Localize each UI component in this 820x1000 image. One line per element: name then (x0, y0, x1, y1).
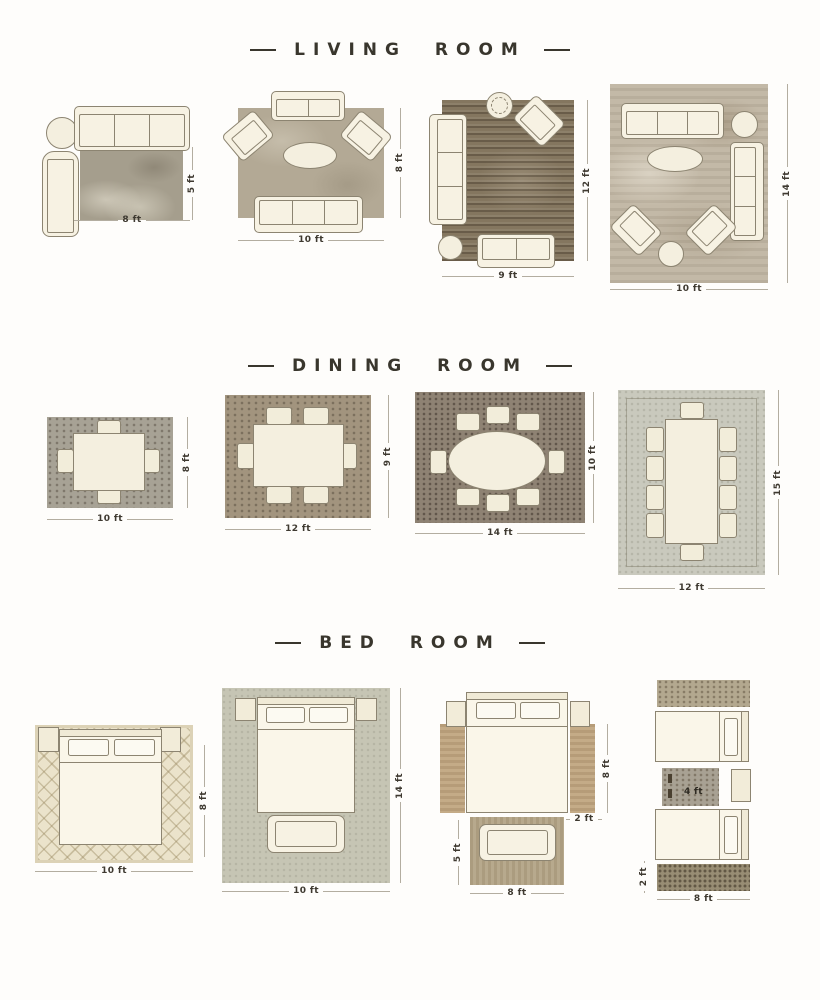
loveseat (271, 91, 345, 121)
section-title-text: LIVING ROOM (294, 40, 526, 60)
pillow (520, 702, 560, 719)
width-dimension: 10 ft (47, 514, 173, 524)
nightstand (235, 698, 256, 721)
width-dimension: 12 ft (225, 524, 371, 534)
dining-room-title: DINING ROOM (0, 356, 820, 376)
width-dimension: 8 ft (470, 888, 564, 898)
height-dimension: 8 ft (181, 417, 193, 508)
width-dimension: 10 ft (238, 235, 384, 245)
title-dash (275, 642, 301, 644)
dining-chair (456, 413, 480, 431)
height-dimension: 5 ft (186, 147, 198, 220)
rug-size-guide: LIVING ROOM DINING ROOM BED ROOM 8 ft 5 … (0, 0, 820, 1000)
dining-chair (486, 494, 510, 512)
sofa (429, 114, 467, 225)
living-room-title: LIVING ROOM (0, 40, 820, 60)
bed (59, 729, 162, 845)
runner-rug (657, 680, 750, 707)
bench (477, 234, 555, 268)
dining-chair (548, 450, 565, 474)
dining-chair (680, 544, 704, 561)
oval-coffee-table (647, 146, 703, 172)
width-dimension: 8 ft (657, 894, 750, 904)
dining-chair (646, 485, 664, 510)
dining-table (253, 424, 344, 487)
dining-chair (456, 488, 480, 506)
width-dimension: 10 ft (35, 866, 193, 876)
runner-height-dimension: 8 ft (601, 724, 613, 813)
pillow (309, 707, 348, 723)
sofa (254, 196, 363, 233)
foot-rug-height-dimension: 5 ft (452, 820, 464, 885)
pillow (724, 718, 738, 756)
round-side-table (438, 235, 463, 260)
dining-chair (266, 486, 292, 504)
pillow (266, 707, 305, 723)
rug-pattern-mark (668, 774, 672, 783)
dining-chair (486, 406, 510, 424)
runner-rug (570, 724, 595, 813)
height-dimension: 8 ft (394, 108, 406, 218)
nightstand (570, 701, 590, 727)
width-dimension: 12 ft (618, 583, 765, 593)
height-dimension: 15 ft (772, 390, 784, 575)
bed (257, 697, 355, 813)
nightstand (160, 727, 181, 752)
dining-table (665, 419, 718, 544)
dining-chair (646, 427, 664, 452)
dining-chair (680, 402, 704, 419)
title-dash (544, 49, 570, 51)
dining-chair (303, 486, 329, 504)
twin-bed (655, 711, 749, 762)
round-side-table (731, 111, 758, 138)
height-dimension: 8 ft (198, 745, 210, 857)
height-dimension: 9 ft (382, 395, 394, 518)
bed (466, 692, 568, 813)
width-dimension: 14 ft (415, 528, 585, 538)
dining-chair (266, 407, 292, 425)
pillow (476, 702, 516, 719)
rug-pattern-mark (668, 789, 672, 798)
dining-chair (719, 427, 737, 452)
dining-chair (646, 513, 664, 538)
dining-chair (430, 450, 447, 474)
dining-table (73, 433, 145, 491)
height-dimension: 14 ft (781, 84, 793, 283)
dining-chair (719, 485, 737, 510)
bench (479, 824, 556, 861)
height-dimension: 14 ft (394, 688, 406, 883)
section-title-text: BED ROOM (319, 633, 501, 653)
title-dash (250, 49, 276, 51)
dining-chair (143, 449, 160, 473)
width-dimension: 10 ft (222, 886, 390, 896)
width-dimension: 10 ft (610, 284, 768, 294)
dining-chair (719, 513, 737, 538)
accent-rug-dimension: 4 ft (684, 787, 703, 797)
dining-chair (516, 488, 540, 506)
title-dash (519, 642, 545, 644)
nightstand (38, 727, 59, 752)
runner-rug (657, 864, 750, 891)
sofa (74, 106, 190, 151)
section-title-text: DINING ROOM (292, 356, 528, 376)
width-dimension: 9 ft (442, 271, 574, 281)
width-dimension: 8 ft (74, 215, 190, 225)
runner-width-dimension: 2 ft (566, 814, 602, 824)
dining-chair (646, 456, 664, 481)
dining-chair (57, 449, 74, 473)
nightstand (446, 701, 466, 727)
pillow (724, 816, 738, 854)
twin-bed (655, 809, 749, 860)
dining-chair (516, 413, 540, 431)
nightstand (731, 769, 751, 802)
runner-width-dimension: 2 ft (638, 861, 650, 893)
round-side-table (658, 241, 684, 267)
bed-room-title: BED ROOM (0, 633, 820, 653)
title-dash (546, 365, 572, 367)
dining-chair (303, 407, 329, 425)
title-dash (248, 365, 274, 367)
bench (267, 815, 345, 853)
pillow (114, 739, 155, 756)
oval-dining-table (448, 431, 546, 491)
nightstand (356, 698, 377, 721)
height-dimension: 10 ft (587, 392, 599, 523)
pillow (68, 739, 109, 756)
runner-rug (440, 724, 465, 813)
sofa (621, 103, 724, 139)
rug (80, 147, 183, 220)
oval-coffee-table (283, 142, 337, 169)
dining-chair (719, 456, 737, 481)
plant (486, 92, 513, 119)
height-dimension: 12 ft (581, 100, 593, 261)
